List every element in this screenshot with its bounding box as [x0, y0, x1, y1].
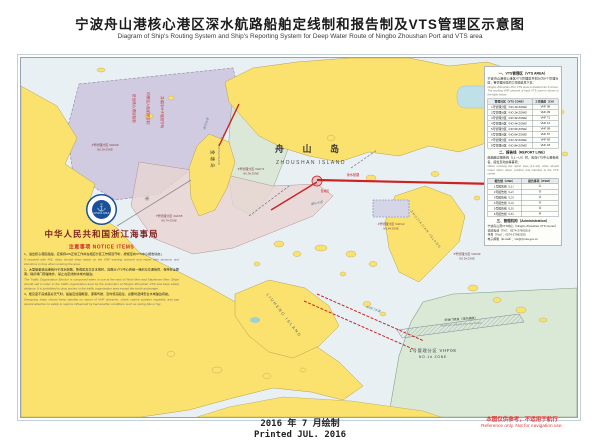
zone4-label-cn: 4号管理分区 VHF12 — [378, 221, 405, 226]
notice-item: The Traffic Organization Service is comp… — [24, 278, 179, 291]
notice-item: 1、进出核心港区船舶，应保持AIS正常工作并在相应分区工作频道守听，按规定向VT… — [24, 253, 179, 257]
overprint-col-2: 均需加入船舶报告制 — [146, 92, 151, 125]
vts-area-title: 一、VTS管理区（VTS AREA） — [488, 71, 559, 76]
administration-title: 三、管理机构（Administration） — [488, 218, 559, 223]
zone3-label-cn: 3号管理分区 VHF71 — [238, 166, 265, 171]
chart-page: 宁波舟山港核心港区深水航路船舶定线制和报告制及VTS管理区示意图 Diagram… — [0, 0, 600, 444]
page-title: 宁波舟山港核心港区深水航路船舶定线制和报告制及VTS管理区示意图 — [0, 13, 600, 33]
zone2-label-en: NO.2# ZONE — [97, 148, 113, 152]
emblem-text: CHINA MSA — [93, 213, 109, 216]
vts-area-text-en: Ningbo Zhoushan Port VTS area is divided… — [488, 86, 559, 97]
overprint-col-3: 并保持VHF值班守听 — [160, 96, 165, 129]
zhoushan-label-cn: 舟 山 岛 — [275, 143, 347, 154]
zone5-label-en: NO.5# ZONE — [459, 257, 475, 261]
report-line-text-en: When crossing the report lines (L1–L6), … — [488, 165, 559, 176]
precautionary-area-circle — [312, 176, 322, 186]
page-subtitle: Diagram of Ship's Routing System and Shi… — [0, 33, 600, 40]
zhoushan-label-en: ZHOUSHAN ISLAND — [276, 160, 346, 166]
notice-item: If required with AIS, ships should keep … — [24, 258, 179, 267]
notice-item: 3、能见度不良或恶劣天气时，船舶应加强瞭望、谨慎驾驶，及时核实船位，必要时选择安… — [24, 292, 179, 296]
legend-panel: 一、VTS管理区（VTS AREA） 宁波舟山港核心港区VTS管理区共划分为8个… — [484, 66, 562, 246]
jintang-label-en: JINTANG ISLAND — [217, 144, 221, 165]
authority-title: 中华人民共和国浙江海事局 — [24, 227, 179, 240]
report-line-table: 报告线（LINE） 报告事项（ITEM） 1号报告线（L1）① 2号报告线（L2… — [488, 178, 559, 217]
disclaimer-cn: 本图仅供参考，不适用于航行 — [462, 416, 582, 423]
zone5-label-cn: 5号管理分区 VHF09 — [454, 251, 481, 256]
col-channel: 工作频道（CH） — [532, 99, 558, 105]
administration-line: 电子邮箱（E-mail）：vts@zjmsa.gov.cn — [488, 237, 559, 241]
msa-emblem: ⚓ CHINA MSA — [86, 194, 117, 225]
vts-area-text-cn: 宁波舟山港核心港区VTS管理区共划分为8个管理分区，各管理分区的工作频道见下表： — [488, 77, 559, 85]
vts-zone-table: 管理分区（VTS ZONE） 工作频道（CH） 1号管理分区（NO.1# ZON… — [488, 99, 559, 149]
route-label: 深水航路 — [347, 172, 361, 177]
liuheng-lake — [250, 317, 260, 323]
anchor-icon: ⚓ — [97, 204, 107, 212]
zone4-label-en: NO.4# ZONE — [383, 227, 399, 231]
notice-block: ⚓ CHINA MSA 中华人民共和国浙江海事局 注意事项 NOTICE ITE… — [24, 194, 179, 308]
anchorage-box — [373, 200, 409, 217]
disclaimer: 本图仅供参考，不适用于航行 Reference only. Not for na… — [462, 416, 582, 429]
notice-item: 2、大型船舶进出港航行于深水航路、警戒区及交叉水域时，应服从VTS中心的统一组织… — [24, 268, 179, 277]
disclaimer-en: Reference only. Not for navigation use. — [462, 423, 582, 429]
notice-heading: 注意事项 NOTICE ITEMS — [24, 243, 179, 251]
zone3-label-en: NO.3# ZONE — [243, 172, 259, 176]
report-line-title: 二、报告线（REPORT LINE） — [488, 150, 559, 155]
report-line-text-cn: 船舶越过报告线（L1—L6）时，应向VTS中心报告船名、船位及动态等事项： — [488, 156, 559, 164]
notice-item: Sea-going ships should keep standby on r… — [24, 298, 179, 307]
print-date-en: Printed JUL. 2016 — [0, 430, 600, 441]
table-row: 8号管理分区（NO.8# ZONE）VHF 18 — [488, 143, 559, 149]
zone1-label-cn: 1号管理分区 VHF08 — [409, 347, 456, 354]
precaution-label: 警戒区 — [321, 189, 330, 193]
waterway-xiazhimen: 虾峙门水道 — [366, 305, 382, 314]
zone2-label-cn: 2号管理分区 VHF09 — [92, 142, 119, 147]
jintang-label-cn: 金塘岛 — [209, 150, 216, 170]
table-row: 6号报告线（L6）⑥ — [488, 211, 559, 217]
overprint-col-1: 进出核心港区船舶 — [132, 94, 137, 123]
zone1-label-en: NO.1# ZONE — [419, 355, 447, 359]
